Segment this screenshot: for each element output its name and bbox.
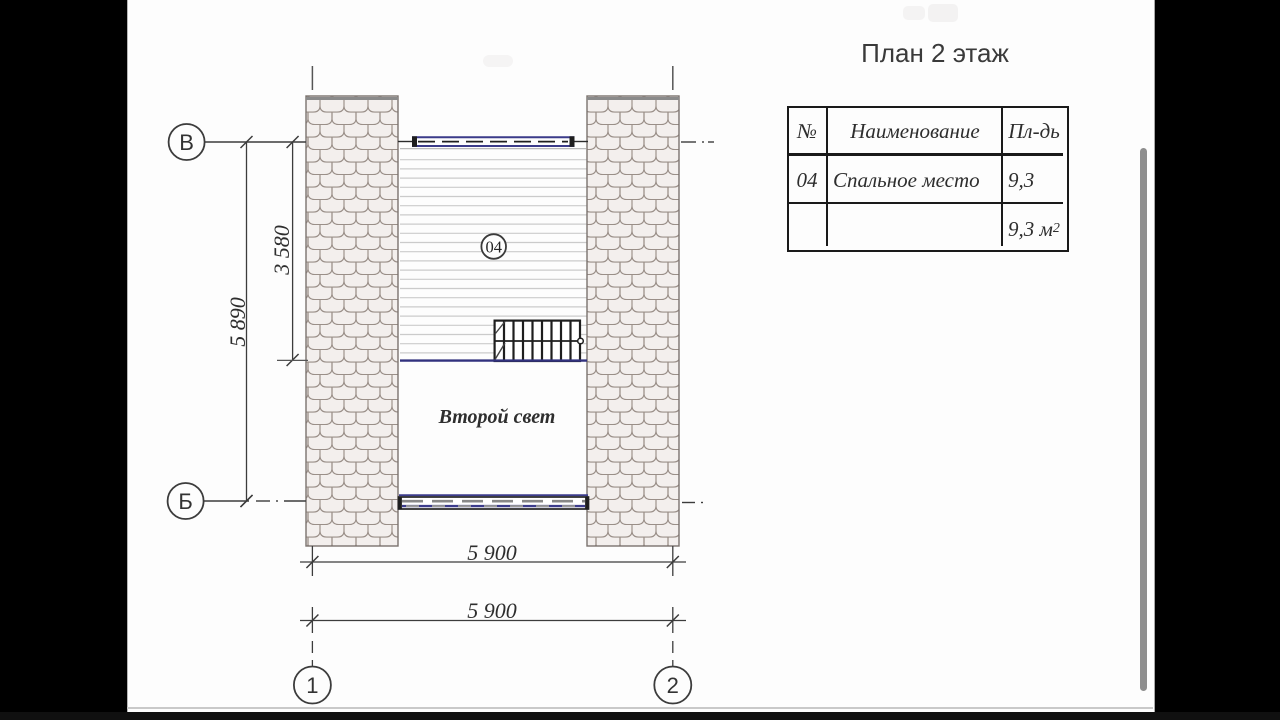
svg-text:1: 1 bbox=[306, 673, 318, 698]
svg-text:3 580: 3 580 bbox=[269, 225, 294, 276]
svg-text:5 900: 5 900 bbox=[467, 598, 517, 623]
svg-text:5 890: 5 890 bbox=[225, 297, 250, 347]
svg-text:Б: Б bbox=[178, 489, 192, 514]
svg-text:2: 2 bbox=[667, 673, 679, 698]
svg-text:5 900: 5 900 bbox=[467, 540, 517, 565]
svg-text:04: 04 bbox=[485, 238, 502, 257]
svg-text:В: В bbox=[179, 130, 194, 155]
svg-text:Второй свет: Второй свет bbox=[438, 406, 556, 428]
